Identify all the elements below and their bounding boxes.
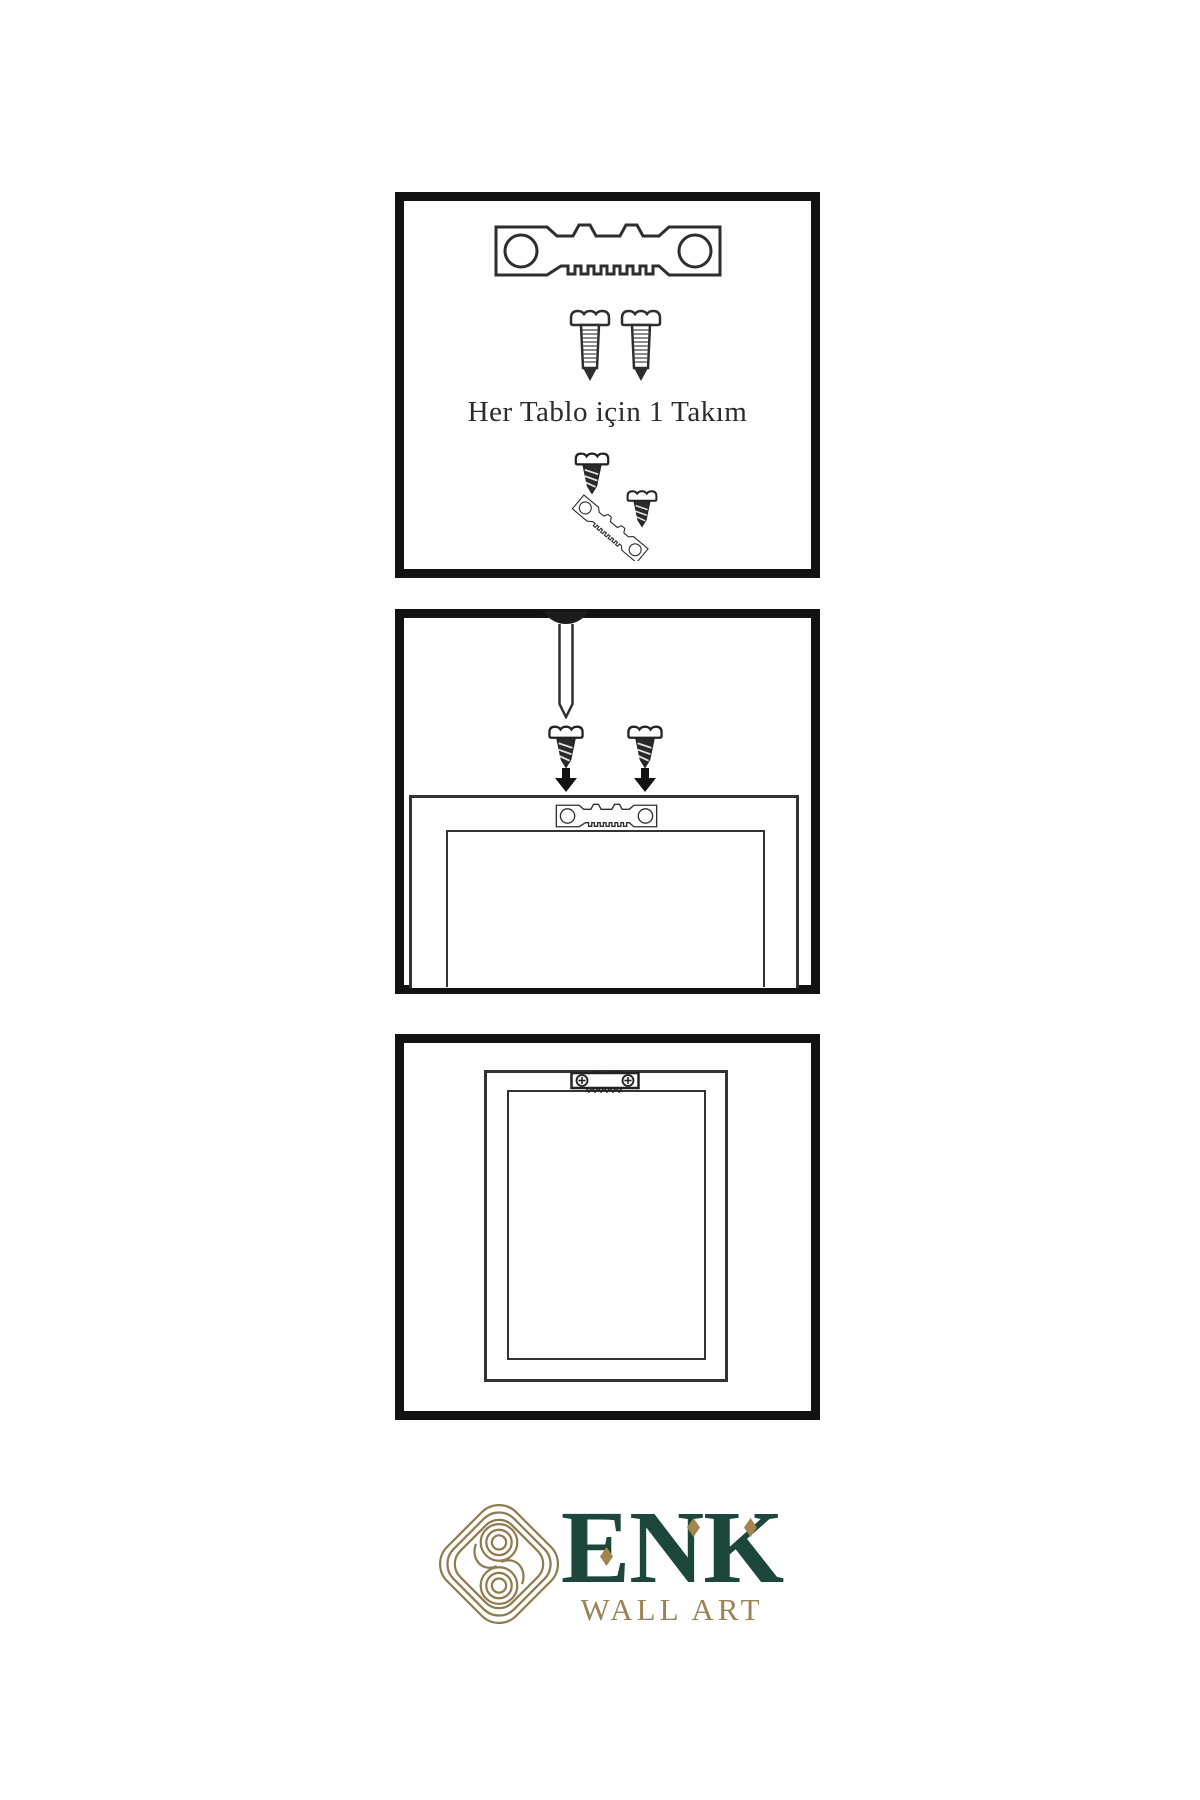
wall-nail-icon <box>543 611 589 719</box>
frame-back-inner-outline <box>446 830 765 987</box>
down-arrow-icon <box>555 768 577 792</box>
down-arrow-icon <box>634 768 656 792</box>
brand-wordmark: ENK <box>558 1496 786 1600</box>
screw-icon <box>623 723 667 769</box>
interlocking-knot-icon <box>438 1502 560 1626</box>
sawtooth-hanger-icon <box>555 801 658 831</box>
brand-subtitle: WALL ART <box>558 1592 786 1628</box>
frame-back-inner-outline <box>507 1090 706 1360</box>
step-2-panel <box>395 609 820 994</box>
mounting-screw-icon <box>568 306 612 384</box>
installed-sawtooth-hanger-icon <box>570 1071 640 1093</box>
step-1-caption: Her Tablo için 1 Takım <box>404 396 811 429</box>
screw-icon <box>544 723 588 769</box>
step-1-panel: Her Tablo için 1 Takım <box>395 192 820 578</box>
mounting-screw-icon <box>619 306 663 384</box>
screw-and-hanger-assembly-icon <box>571 446 666 561</box>
instruction-sheet: Her Tablo için 1 Takım ENK WALL ART <box>0 0 1200 1800</box>
sawtooth-hanger-icon <box>493 222 723 280</box>
step-3-panel <box>395 1034 820 1420</box>
